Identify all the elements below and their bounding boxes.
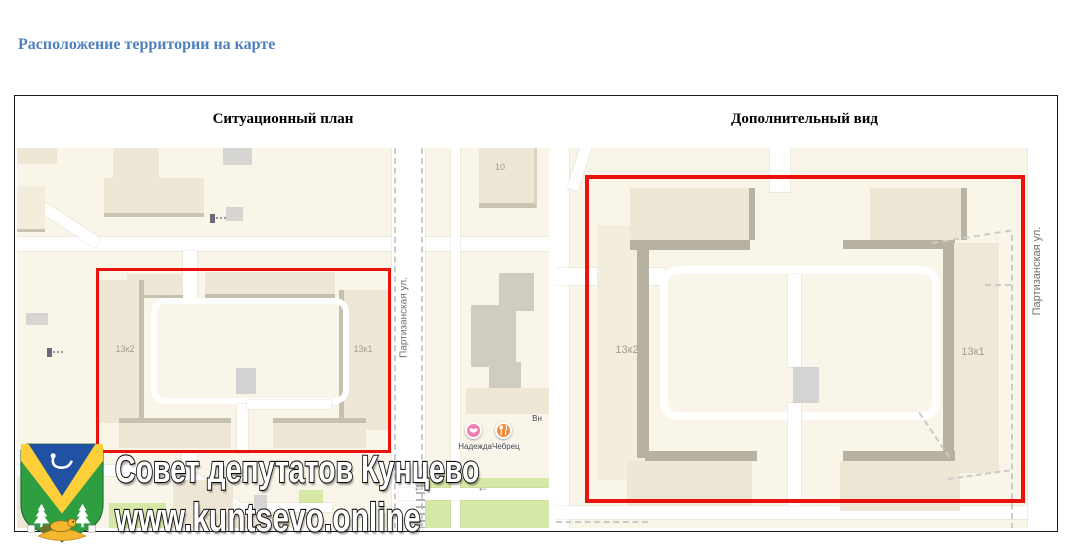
lips-icon (468, 427, 479, 434)
map-building (226, 207, 243, 221)
map-building (471, 305, 516, 367)
map-building (17, 148, 57, 164)
road-direction-arrow: ← (479, 485, 487, 495)
map-building-10 (479, 148, 537, 208)
watermark-line2: www.kuntsevo.online (115, 494, 479, 542)
map-road-street (1028, 148, 1049, 528)
additional-map: 13к2 13к1 Партизанская ул. (555, 148, 1049, 528)
restaurant-icon (495, 422, 512, 439)
kuntsevo-coat-of-arms (17, 441, 107, 544)
street-label-partizanskaya: Партизанская ул. (1031, 206, 1043, 336)
map-building (104, 178, 204, 217)
map-building (223, 148, 252, 165)
map-building (17, 186, 45, 232)
barrier-icon (210, 214, 215, 223)
page-title: Расположение территории на карте (18, 36, 275, 54)
report-page: Расположение территории на карте Ситуаци… (0, 0, 1081, 560)
watermark-line1: Совет депутатов Кунцево (115, 448, 479, 494)
map-road (555, 148, 569, 528)
territory-boundary (585, 175, 1025, 503)
map-building (489, 362, 521, 390)
fork-knife-icon (499, 425, 508, 436)
situational-plan-title: Ситуационный план (15, 111, 551, 128)
additional-view-title: Дополнительный вид (552, 111, 1057, 128)
dashed-boundary (556, 521, 648, 523)
sidemark (88, 525, 95, 532)
map-building (466, 388, 549, 414)
beauty-salon-icon (465, 422, 482, 439)
territory-boundary (96, 268, 391, 453)
building-label-10: 10 (485, 162, 515, 172)
street-label-partizanskaya: Партизанская ул. (399, 263, 410, 373)
barrier-icon (47, 348, 52, 357)
poi-label-partial: Вн (527, 414, 547, 423)
map-road (555, 506, 1033, 519)
map-building (26, 313, 48, 325)
map-building (113, 148, 159, 178)
sidemark (28, 525, 35, 532)
watermark: Совет депутатов Кунцево www.kuntsevo.onl… (115, 448, 479, 542)
